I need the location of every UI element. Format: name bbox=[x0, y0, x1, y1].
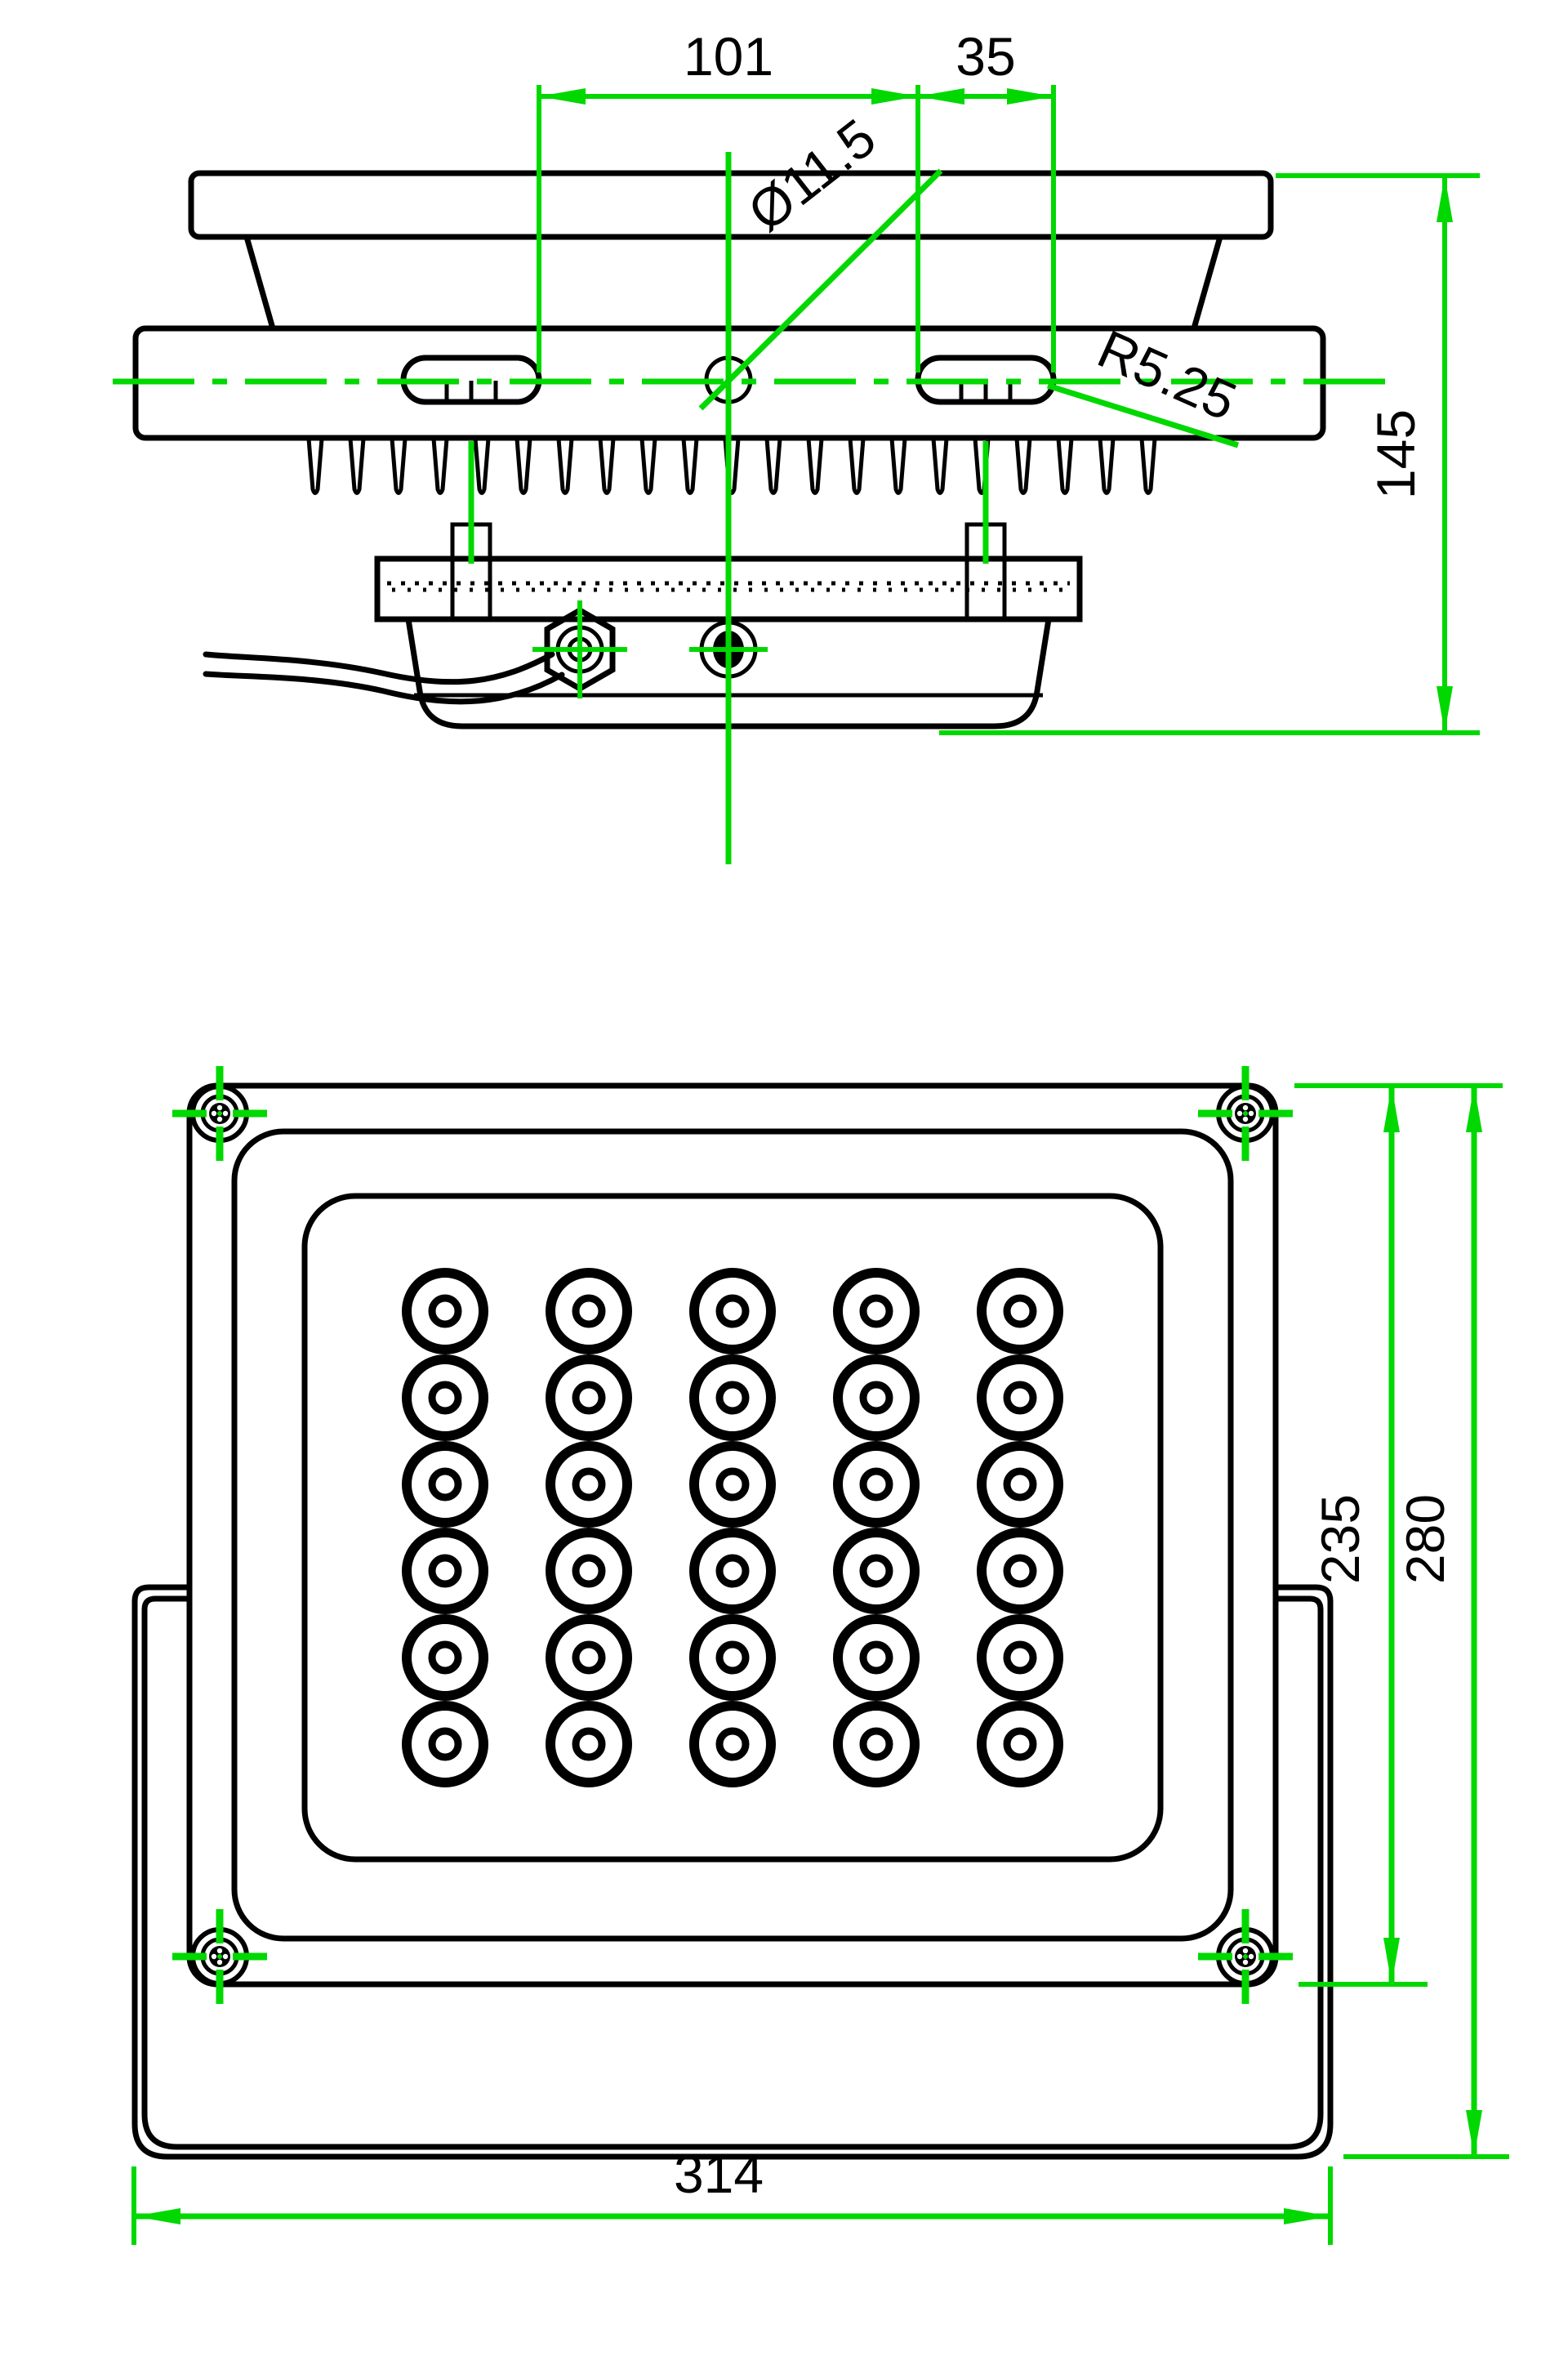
led bbox=[407, 1706, 483, 1783]
led bbox=[694, 1533, 771, 1609]
dim-101-label: 101 bbox=[684, 26, 773, 87]
led bbox=[838, 1619, 915, 1696]
led bbox=[694, 1273, 771, 1350]
dim-35-label: 35 bbox=[955, 26, 1015, 87]
led bbox=[982, 1706, 1058, 1783]
led bbox=[407, 1273, 483, 1350]
led bbox=[550, 1359, 627, 1436]
led bbox=[982, 1619, 1058, 1696]
dim-280-label: 280 bbox=[1395, 1494, 1455, 1584]
led bbox=[982, 1533, 1058, 1609]
technical-drawing-canvas: 101 35 Ø11.5 R5.25 145 bbox=[0, 0, 1568, 2356]
led bbox=[550, 1533, 627, 1609]
dim-235-label: 235 bbox=[1310, 1494, 1370, 1584]
drawing-sheet: 101 35 Ø11.5 R5.25 145 bbox=[0, 0, 1568, 2356]
led bbox=[838, 1359, 915, 1436]
led bbox=[838, 1446, 915, 1523]
led bbox=[694, 1619, 771, 1696]
dim-145-label: 145 bbox=[1365, 409, 1426, 499]
led bbox=[550, 1273, 627, 1350]
led bbox=[550, 1446, 627, 1523]
led bbox=[982, 1446, 1058, 1523]
led bbox=[838, 1533, 915, 1609]
led bbox=[838, 1273, 915, 1350]
led bbox=[694, 1706, 771, 1783]
led bbox=[694, 1446, 771, 1523]
led bbox=[407, 1446, 483, 1523]
led bbox=[407, 1359, 483, 1436]
led bbox=[550, 1619, 627, 1696]
led bbox=[407, 1533, 483, 1609]
led bbox=[982, 1359, 1058, 1436]
led bbox=[407, 1619, 483, 1696]
dim-314-label: 314 bbox=[674, 2144, 764, 2204]
led bbox=[694, 1359, 771, 1436]
led bbox=[838, 1706, 915, 1783]
led bbox=[550, 1706, 627, 1783]
led bbox=[982, 1273, 1058, 1350]
